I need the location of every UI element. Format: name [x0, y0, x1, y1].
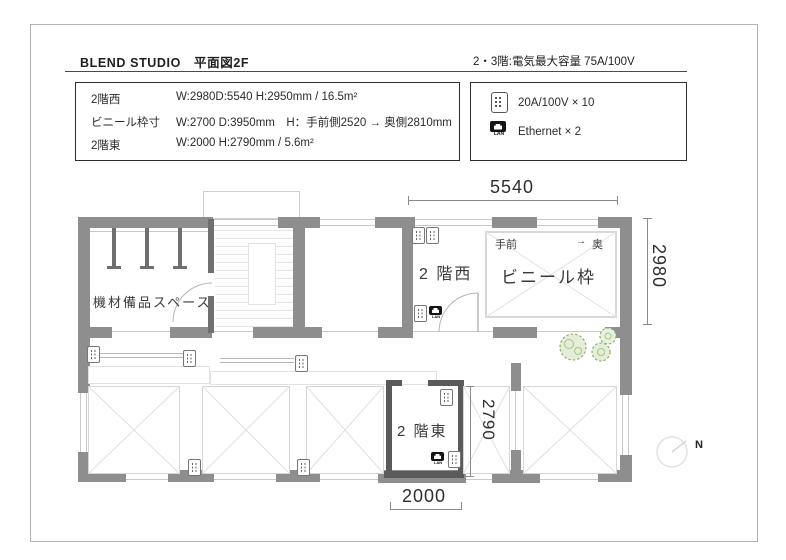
wall: [278, 217, 320, 228]
wall: [90, 327, 112, 338]
dimension-tick: [461, 502, 462, 510]
outlet-icon: [183, 350, 196, 367]
roof-overhang: [203, 191, 300, 219]
sheet-title: BLEND STUDIO 平面図2F: [80, 52, 249, 71]
wall: [78, 479, 632, 480]
wall: [293, 228, 305, 330]
compass-north-label: N: [695, 439, 703, 451]
front-side-label: 手前: [495, 236, 517, 252]
dimension-tick: [390, 502, 391, 510]
wall: [492, 217, 537, 228]
legend-box: 20A/100V × 10 LAN Ethernet × 2: [470, 82, 687, 161]
outlet-icon: [295, 355, 308, 372]
dimension-tick: [466, 386, 474, 387]
wall: [78, 217, 213, 228]
east-room-wall: [384, 471, 464, 478]
wall: [170, 327, 212, 338]
wall: [598, 470, 632, 482]
spec-row: ビニール枠寸 W:2700 D:3950mm H：手前側2520 → 奥側281…: [76, 114, 459, 136]
back-side-label: 奥: [592, 236, 603, 252]
dimension-tick: [617, 196, 618, 205]
outlet-icon: [448, 451, 461, 468]
floor-plan-sheet: BLEND STUDIO 平面図2F 2・3階:電気最大容量 75A/100V …: [0, 0, 786, 560]
legend-ethernet-label: Ethernet × 2: [518, 126, 581, 138]
dimension-east-width: 2000: [402, 486, 446, 507]
spec-row: 2階東 W:2000 H:2790mm / 5.6m²: [76, 137, 459, 159]
outlet-icon: [412, 227, 425, 244]
wall: [78, 331, 632, 332]
outlet-icon: [188, 459, 201, 476]
spec-value: W:2980D:5540 H:2950mm / 16.5m²: [176, 91, 357, 103]
cable-run: [220, 358, 294, 359]
west-room-label: 2 階西: [419, 260, 472, 284]
spec-value: W:2000 H:2790mm / 5.6m²: [176, 137, 314, 149]
spec-table: 2階西 W:2980D:5540 H:2950mm / 16.5m² ビニール枠…: [75, 82, 460, 161]
spec-label: 2階東: [91, 137, 120, 153]
spec-value: W:2700 D:3950mm H：手前側2520 → 奥側2810mm: [176, 114, 452, 130]
wall: [78, 473, 632, 474]
ledge: [210, 371, 437, 385]
wall: [511, 363, 521, 391]
dimension-line: [470, 386, 471, 477]
dimension-tick: [408, 196, 409, 205]
wall: [90, 231, 208, 232]
cable-run: [220, 362, 294, 363]
east-room-wall: [386, 380, 392, 478]
dimension-tick: [643, 324, 652, 325]
lan-icon: LAN: [429, 306, 443, 320]
outlet-icon: [426, 227, 439, 244]
spec-label: ビニール枠寸: [91, 114, 160, 130]
dimension-west-depth: 2980: [648, 244, 669, 288]
storage-room-label: 機材備品スペース: [93, 292, 211, 311]
storage-partition: [140, 266, 154, 269]
wall: [620, 217, 632, 395]
storage-partition: [178, 228, 182, 269]
spec-label: 2階西: [91, 91, 120, 107]
dimension-line: [408, 200, 618, 201]
storage-partition: [173, 266, 187, 269]
dimension-east-depth: 2790: [478, 399, 498, 441]
wall: [511, 450, 521, 472]
legend-outlet-label: 20A/100V × 10: [518, 97, 594, 109]
outlet-icon: [414, 305, 427, 322]
cable-run: [98, 357, 184, 358]
outlet-icon: [440, 389, 453, 406]
outlet-icon: [297, 459, 310, 476]
storage-partition: [145, 228, 149, 269]
wall: [78, 470, 126, 482]
lan-icon: LAN: [490, 121, 508, 137]
storage-partition: [112, 228, 116, 269]
wall: [493, 327, 537, 338]
outlet-icon: [87, 346, 100, 363]
outlet-icon: [491, 92, 508, 113]
cable-run: [98, 353, 184, 354]
storage-partition: [107, 266, 121, 269]
header-rule: [65, 71, 687, 72]
vinyl-frame-label: ビニール枠: [501, 263, 596, 288]
lan-icon: LAN: [431, 452, 445, 466]
ledge: [88, 366, 210, 384]
direction-arrow: →: [576, 236, 586, 247]
capacity-note: 2・3階:電気最大容量 75A/100V: [473, 53, 635, 69]
wall: [208, 219, 214, 273]
wall: [515, 390, 516, 452]
east-room-label: 2 階東: [397, 420, 448, 441]
dimension-line: [390, 509, 462, 510]
dimension-tick: [466, 476, 474, 477]
east-room-wall: [386, 380, 402, 386]
stair-core: [248, 243, 276, 305]
dimension-tick: [643, 218, 652, 219]
dimension-west-width: 5540: [490, 177, 534, 198]
spec-row: 2階西 W:2980D:5540 H:2950mm / 16.5m²: [76, 91, 459, 113]
wall: [605, 327, 632, 338]
